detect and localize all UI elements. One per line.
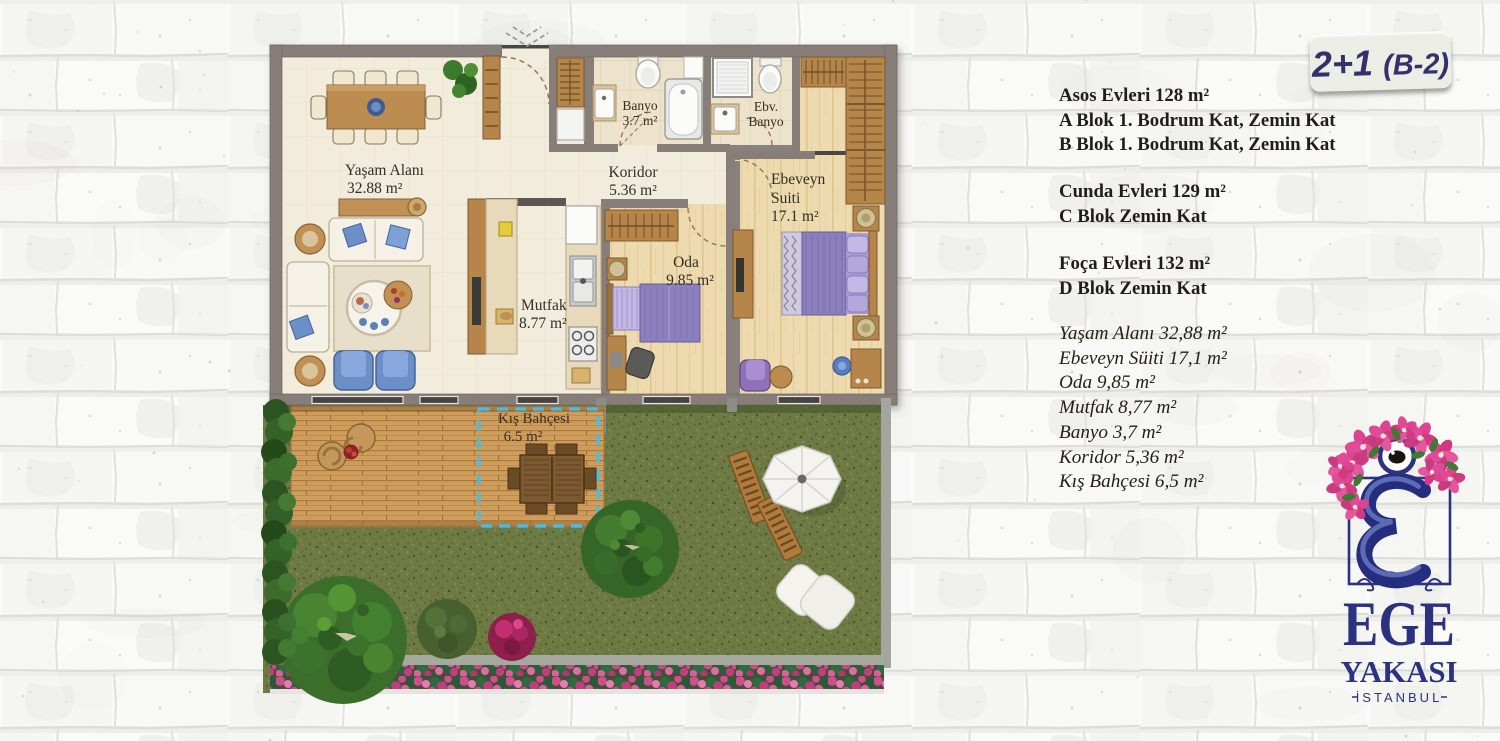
svg-text:Yaşam Alanı: Yaşam Alanı	[345, 162, 425, 179]
svg-text:Oda: Oda	[673, 254, 699, 271]
svg-text:5.36 m²: 5.36 m²	[609, 182, 657, 199]
svg-text:Mutfak: Mutfak	[521, 297, 567, 314]
svg-text:6.5 m²: 6.5 m²	[504, 429, 543, 445]
svg-text:17.1 m²: 17.1 m²	[771, 208, 819, 225]
svg-text:YAKASI: YAKASI	[1341, 654, 1458, 689]
svg-text:Koridor: Koridor	[608, 164, 658, 181]
svg-text:32.88 m²: 32.88 m²	[347, 180, 403, 197]
svg-text:Kış Bahçesi: Kış Bahçesi	[498, 411, 570, 427]
svg-text:Banyo: Banyo	[748, 114, 783, 129]
svg-text:EGE: EGE	[1343, 589, 1455, 659]
svg-text:Banyo: Banyo	[622, 98, 657, 113]
svg-text:İSTANBUL: İSTANBUL	[1356, 690, 1443, 705]
svg-text:3.7 m²: 3.7 m²	[623, 113, 658, 128]
svg-text:Ebeveyn: Ebeveyn	[771, 171, 825, 188]
svg-text:9.85 m²: 9.85 m²	[666, 272, 714, 289]
svg-text:Ebv.: Ebv.	[754, 99, 778, 114]
svg-text:8.77 m²: 8.77 m²	[519, 315, 567, 332]
svg-text:Suiti: Suiti	[771, 190, 801, 207]
